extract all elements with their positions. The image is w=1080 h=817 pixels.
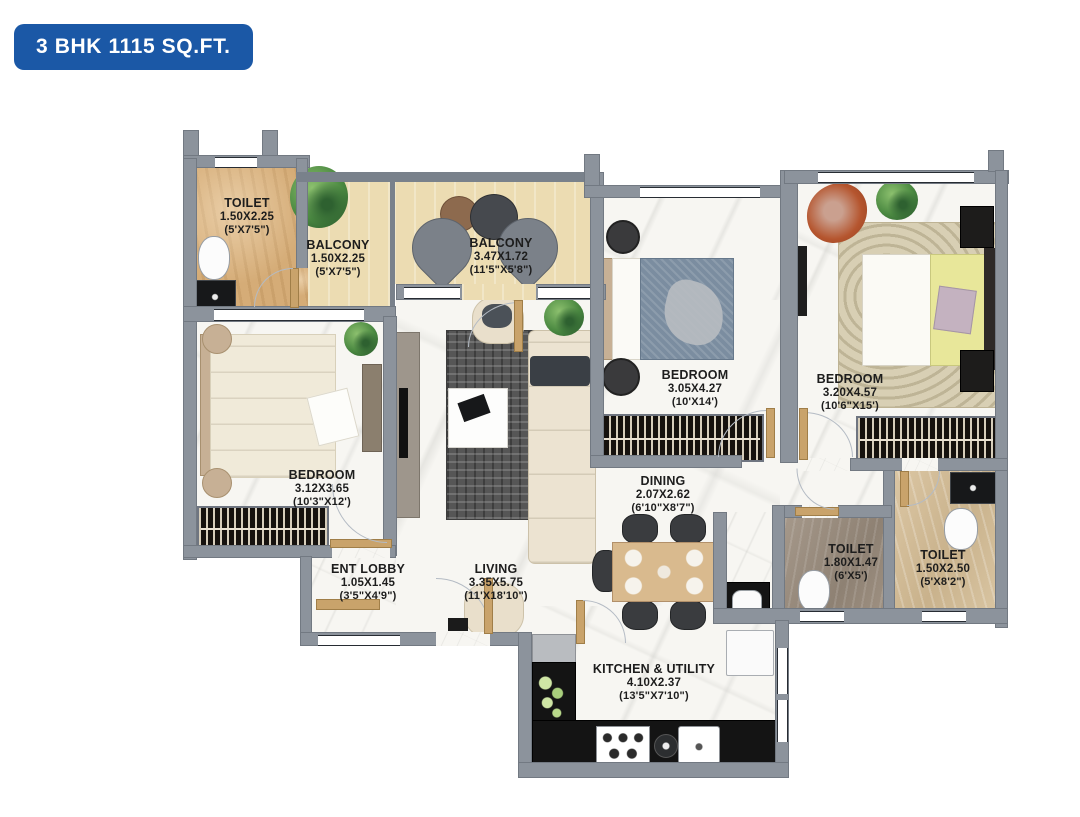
room-name: BEDROOM <box>262 468 382 483</box>
nightstand <box>960 350 994 392</box>
kitchen-sink <box>678 726 720 764</box>
bed-pillow <box>933 286 977 335</box>
room-name: TOILET <box>893 548 993 563</box>
room-label-toilet-3: TOILET 1.50X2.50 (5'X8'2") <box>893 548 993 589</box>
room-size-imperial: (5'X7'5") <box>288 266 388 279</box>
window <box>800 611 844 622</box>
room-size-metric: 3.20X4.57 <box>790 387 910 401</box>
room-label-bedroom-left: BEDROOM 3.12X3.65 (10'3"X12') <box>262 468 382 509</box>
tv-screen <box>399 388 408 458</box>
window <box>922 611 966 622</box>
wall <box>713 512 727 612</box>
nightstand <box>202 324 232 354</box>
room-size-metric: 2.07X2.62 <box>603 489 723 503</box>
room-size-metric: 3.35X5.75 <box>436 577 556 591</box>
gas-hob <box>596 726 650 764</box>
room-label-dining: DINING 2.07X2.62 (6'10"X8'7") <box>603 474 723 515</box>
room-label-bedroom-right: BEDROOM 3.20X4.57 (10'6"X15') <box>790 372 910 413</box>
room-name: BEDROOM <box>635 368 755 383</box>
wall-stub <box>183 130 199 158</box>
room-size-imperial: (5'X7'5") <box>191 224 303 237</box>
study-desk <box>362 364 382 452</box>
dining-table <box>612 542 716 602</box>
wardrobe <box>856 416 997 462</box>
room-size-imperial: (13'5"X7'10") <box>576 690 732 703</box>
door-leaf <box>766 408 775 458</box>
room-size-metric: 1.50X2.25 <box>288 253 388 267</box>
floor-plan-canvas: 3 BHK 1115 SQ.FT. <box>0 0 1080 817</box>
plant <box>876 180 918 220</box>
shower-tray <box>950 472 996 504</box>
room-size-imperial: (6'10"X8'7") <box>603 502 723 515</box>
room-size-imperial: (5'X8'2") <box>893 576 993 589</box>
room-label-balcony-2: BALCONY 3.47X1.72 (11'5"X5'8") <box>438 236 564 277</box>
room-size-metric: 1.50X2.50 <box>893 563 993 577</box>
room-label-ent-lobby: ENT LOBBY 1.05X1.45 (3'5"X4'9") <box>312 562 424 603</box>
nightstand <box>202 468 232 498</box>
window <box>538 287 590 299</box>
refrigerator <box>726 630 774 676</box>
room-name: LIVING <box>436 562 556 577</box>
window <box>318 635 400 646</box>
room-size-metric: 3.47X1.72 <box>438 251 564 265</box>
room-name: TOILET <box>191 196 303 211</box>
room-size-imperial: (11'X18'10") <box>436 590 556 603</box>
window <box>777 700 788 742</box>
door-opening <box>436 632 490 646</box>
room-size-imperial: (11'5"X5'8") <box>438 264 564 277</box>
dining-chair <box>670 514 706 544</box>
room-name: BEDROOM <box>790 372 910 387</box>
toilet-wc <box>198 236 230 280</box>
door-opening <box>902 458 938 471</box>
room-size-metric: 3.05X4.27 <box>635 383 755 397</box>
window <box>640 187 760 198</box>
window <box>777 648 788 694</box>
vegetable-basket <box>534 668 572 728</box>
room-name: DINING <box>603 474 723 489</box>
plan-title-badge: 3 BHK 1115 SQ.FT. <box>14 24 253 70</box>
room-size-metric: 1.05X1.45 <box>312 577 424 591</box>
wall <box>590 172 604 458</box>
wall-stub <box>262 130 278 158</box>
wall-stub <box>988 150 1004 172</box>
window <box>404 287 460 299</box>
window <box>818 172 974 183</box>
wall <box>780 170 798 463</box>
wall <box>775 620 789 778</box>
round-mat <box>606 220 640 254</box>
balcony-railing <box>296 172 596 182</box>
small-appliance <box>654 734 678 758</box>
sofa-throw <box>530 356 590 386</box>
room-size-imperial: (3'5"X4'9") <box>312 590 424 603</box>
room-label-living: LIVING 3.35X5.75 (11'X18'10") <box>436 562 556 603</box>
wall <box>772 505 785 620</box>
kitchen-cabinet <box>532 634 576 664</box>
door-leaf <box>514 300 523 352</box>
wall <box>995 170 1008 628</box>
room-label-toilet-1: TOILET 1.50X2.25 (5'X7'5") <box>191 196 303 237</box>
room-size-imperial: (10'3"X12') <box>262 496 382 509</box>
room-label-bedroom-mid: BEDROOM 3.05X4.27 (10'X14') <box>635 368 755 409</box>
dining-chair <box>670 600 706 630</box>
door-opening <box>462 284 536 300</box>
room-label-balcony-1: BALCONY 1.50X2.25 (5'X7'5") <box>288 238 388 279</box>
plant <box>544 298 584 336</box>
toilet-wc <box>944 508 978 550</box>
window <box>214 309 364 321</box>
room-name: BALCONY <box>288 238 388 253</box>
bed-duvet <box>862 254 934 366</box>
balcony-divider <box>390 176 395 306</box>
wall-stub <box>584 154 600 188</box>
plant <box>344 322 378 356</box>
dining-chair <box>622 600 658 630</box>
room-label-kitchen: KITCHEN & UTILITY 4.10X2.37 (13'5"X7'10"… <box>576 662 732 703</box>
window <box>215 157 257 168</box>
room-size-metric: 3.12X3.65 <box>262 483 382 497</box>
room-size-imperial: (10'6"X15') <box>790 400 910 413</box>
room-name: BALCONY <box>438 236 564 251</box>
door-leaf <box>799 408 808 460</box>
nightstand <box>960 206 994 248</box>
room-name: ENT LOBBY <box>312 562 424 577</box>
room-size-metric: 4.10X2.37 <box>576 677 732 691</box>
room-name: KITCHEN & UTILITY <box>576 662 732 677</box>
dining-chair <box>622 514 658 544</box>
wardrobe <box>197 506 329 550</box>
wall <box>518 762 789 778</box>
room-size-metric: 1.50X2.25 <box>191 211 303 225</box>
wall <box>518 632 532 778</box>
room-size-imperial: (10'X14') <box>635 396 755 409</box>
